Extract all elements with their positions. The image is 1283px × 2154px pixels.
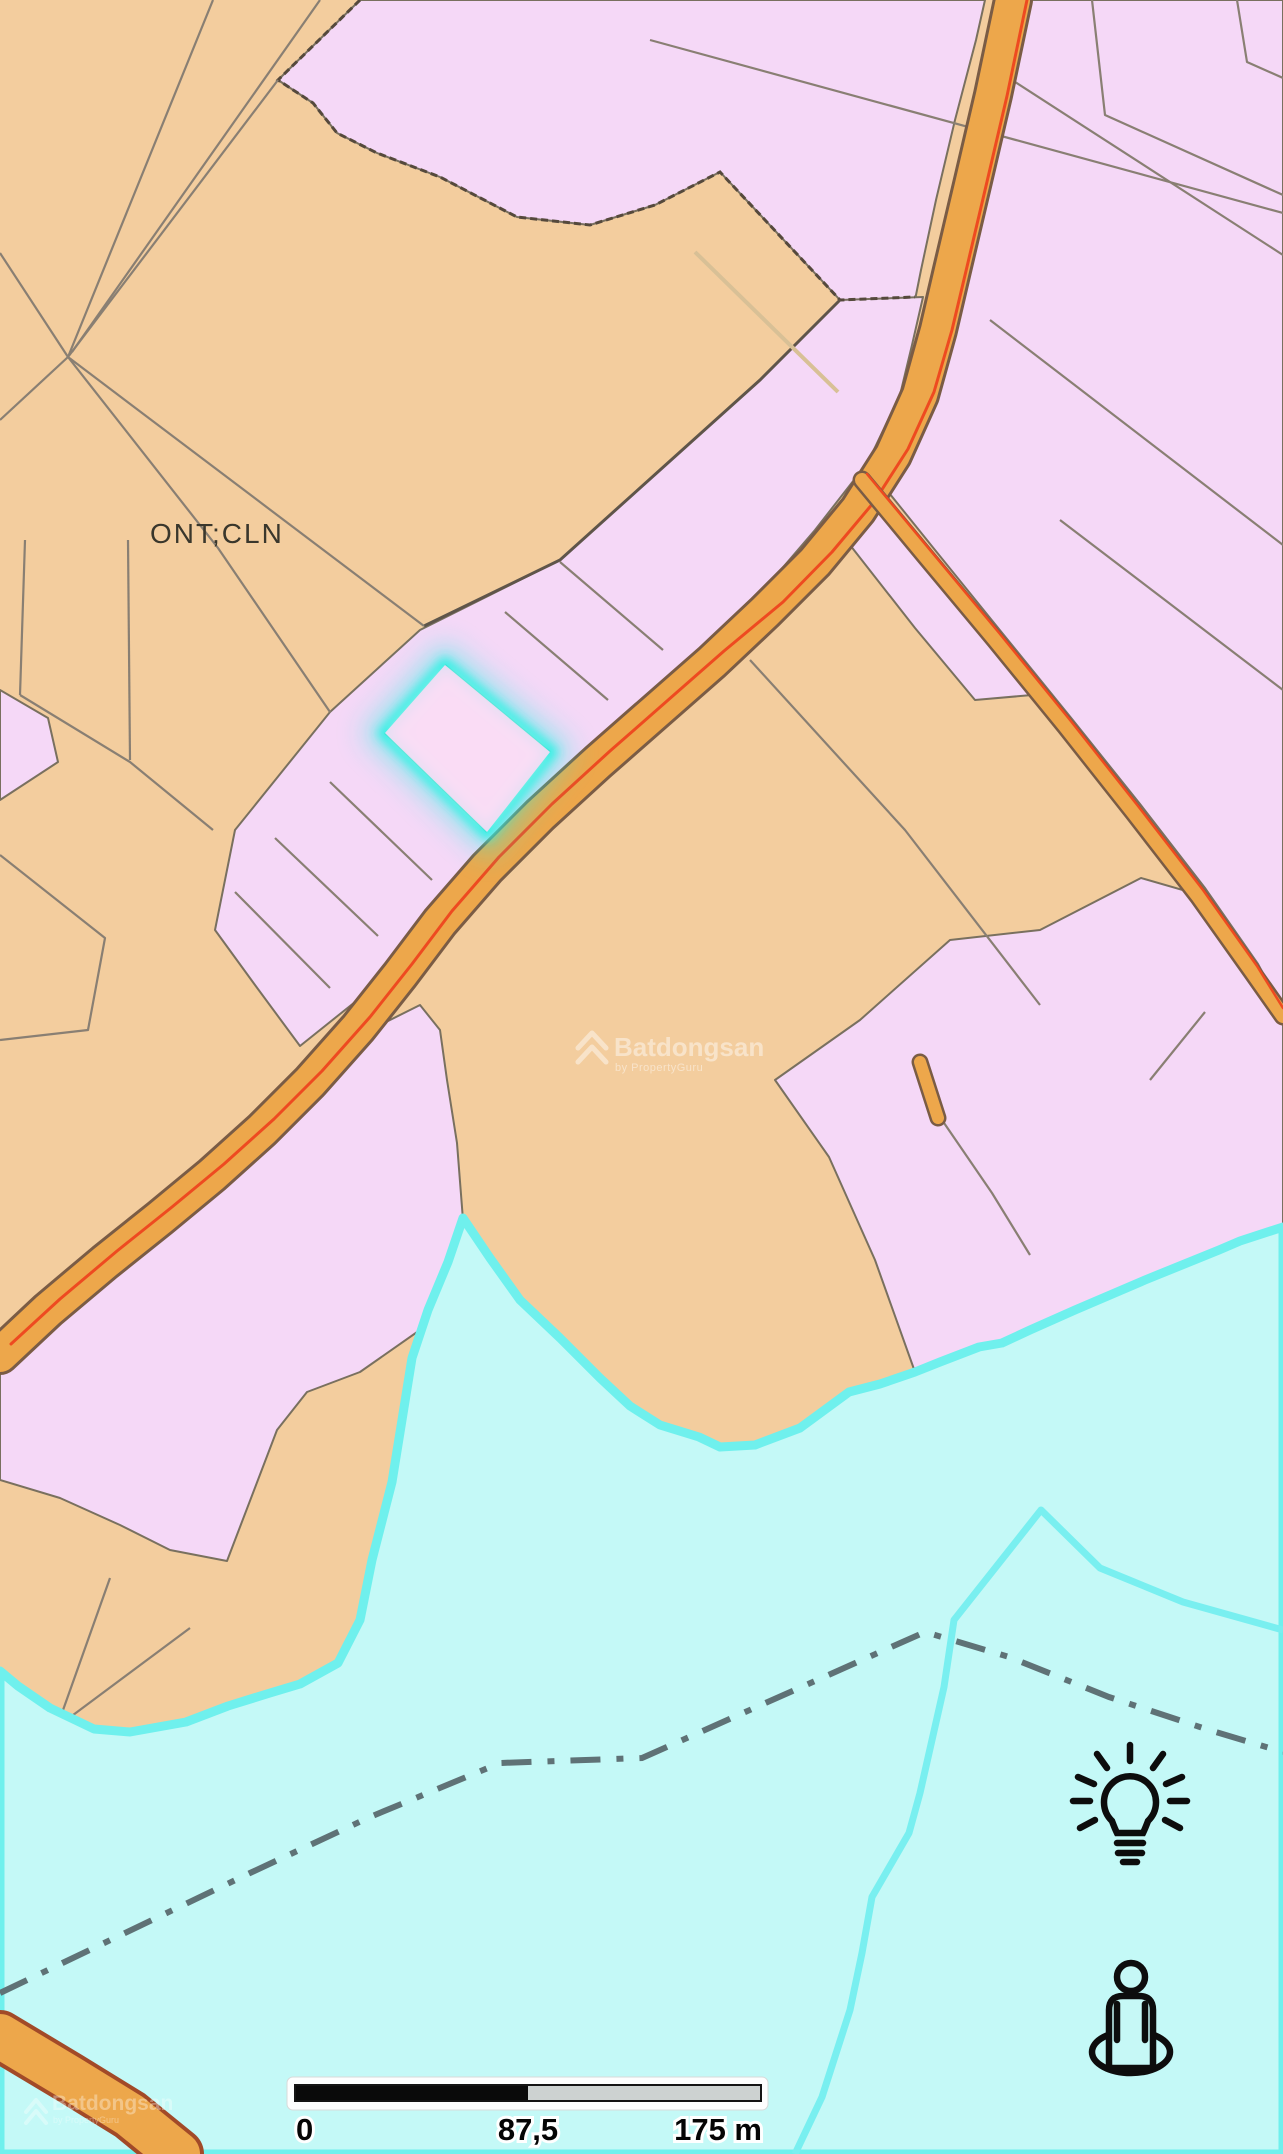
- map-screen: ONT;CLN Batdongsan by PropertyGuru Batdo…: [0, 0, 1283, 2154]
- scale-label-mid: 87,5: [498, 2112, 558, 2147]
- watermark-brand-text: Batdongsan: [614, 1032, 764, 1062]
- map-canvas[interactable]: ONT;CLN Batdongsan by PropertyGuru Batdo…: [0, 0, 1283, 2154]
- scale-label-start: 0: [296, 2112, 313, 2147]
- watermark-byline-text: by PropertyGuru: [615, 1062, 703, 1074]
- watermark-byline-text: by PropertyGuru: [53, 2115, 119, 2125]
- zone-code-label: ONT;CLN: [150, 518, 284, 549]
- watermark-brand-text: Batdongsan: [52, 2092, 173, 2115]
- scale-bar-filled-half: [296, 2086, 528, 2100]
- scale-label-end: 175 m: [674, 2112, 762, 2147]
